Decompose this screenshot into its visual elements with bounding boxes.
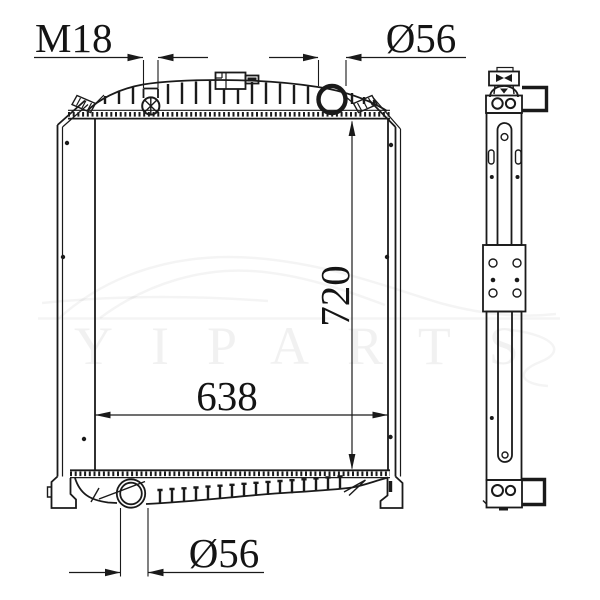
- side-bottom-tank: [487, 480, 523, 508]
- side-outlet-stub: [522, 480, 545, 505]
- dim-label-bottom-diameter: Ø56: [189, 530, 260, 576]
- dim-label-width: 638: [196, 373, 258, 419]
- dim-top-pipe-diameter: Ø56: [269, 15, 466, 86]
- side-mid-block: [483, 245, 526, 312]
- dim-filler-thread: M18: [34, 15, 208, 88]
- dim-core-height: 720: [312, 121, 358, 470]
- watermark: YIPARTS: [38, 257, 560, 386]
- side-inlet-stub: [522, 88, 547, 111]
- dim-label-top-diameter: Ø56: [386, 15, 457, 61]
- cap-lever: [248, 78, 257, 82]
- dim-bottom-pipe-diameter: Ø56: [69, 508, 264, 577]
- watermark-car-swoosh: [58, 257, 556, 319]
- bottom-tank: [48, 470, 403, 508]
- bottom-tank-fins: [157, 476, 342, 503]
- side-upper-body: [487, 113, 522, 245]
- watermark-hood-line: [42, 297, 268, 303]
- side-upper-slot: [498, 123, 512, 245]
- top-tank: [68, 73, 390, 119]
- filler-neck: [142, 89, 159, 115]
- left-foot: [52, 477, 77, 509]
- technical-drawing-canvas: YIPARTS: [0, 0, 600, 600]
- radiator-drawing: YIPARTS: [0, 0, 600, 600]
- dim-core-width: 638: [95, 373, 388, 419]
- dim-label-height: 720: [312, 265, 358, 327]
- side-view: [483, 68, 547, 511]
- dim-label-m18: M18: [35, 15, 112, 61]
